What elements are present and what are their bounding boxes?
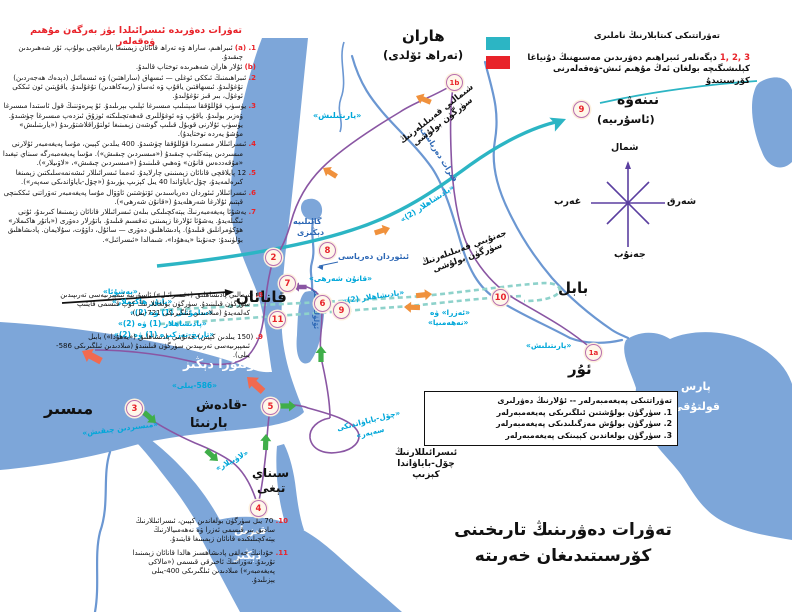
event-marker-8: 8 [319,242,336,259]
compass-south-label: جەنۇب [614,249,646,260]
event-marker-5: 5 [262,398,279,415]
compass-east-label: شەرق [667,196,696,207]
event-item: 9. (150 يىلدىن كېيىن) جەنۇبىي پادىشاھلىق… [55,333,263,361]
place-nineveh: نىنەۋە [617,92,659,108]
sea-persian-label-line2: قولتۇقى [672,400,720,413]
corner-lake-shape [752,77,792,167]
event-marker-3: 3 [126,400,143,417]
event-item: 5. 12 پايلاقچى قانائان زېمىنىنى چارلايدۇ… [2,169,256,187]
place-sinai-line2: تېغى [257,481,285,495]
legend-events-label: 1, 2, 3 دېگەنلەر ئىبراھىم دەۋرىدىن مەسىھ… [512,53,750,87]
euphrates-river [352,56,622,343]
legend-event-numbers: 1, 2, 3 [720,53,750,63]
event-item: 10. 70 يىل سۈرگۈن بولغاندىن كېيىن، ئىسرا… [128,517,288,545]
events-list-main: 1. (a) ئىبراھىم، ساراھ ۋە تەراھ قانائان … [2,44,256,246]
orange-arrow-5 [404,302,420,314]
prophets-legend: تەۋراتتىكى پەيغەمبەرلەر -- ئۇلارنىڭ دەۋر… [424,391,678,446]
prophets-legend-item: 1. سۈرگۈن بولۇشتىن ئىلگىرىكى پەيغەمبەرلە… [430,407,672,419]
compass-north-label: شمال [611,142,639,153]
legend-book-color-swatch [486,37,510,50]
event-marker-6: 6 [314,295,331,312]
event-item: (b) ئۇلار ھاران شەھىرىدە توختاپ قالىدۇ. [2,63,256,72]
route-ur-to-haran [451,84,593,350]
nile-river [95,452,110,612]
book-genesis-label-1: «يارىتىلىش» [313,111,361,120]
compass-rose [591,161,665,247]
event-item: 8. شىمالىي پادىشاھلىق («ئىسرائىل») ئاسۇر… [55,291,263,319]
place-nineveh-sub: (ئاسۇرىيە) [597,113,655,126]
jordan-pointer-line [319,262,338,266]
event-marker-1a: 1a [585,344,602,361]
book-deuteronomy-label: «قانۇن شەرھى» [309,274,372,283]
label-year-586: «586-يىلى» [172,381,217,390]
sea-persian-label-line1: پارس [681,380,711,393]
orange-arrow-1 [414,91,433,107]
event-item: 4. ئىسرائىللار مىسىردا قۇللۇققا چۈشىدۇ. … [2,140,256,168]
lake-galilee-label-line1: گالىلىيە [293,217,322,226]
note-wilderness: ئىسرائىللارنىڭ چۆل-باياۋاندا كېزىپ [390,448,462,480]
orange-arrow-4 [416,289,433,302]
event-marker-11: 11 [269,311,286,328]
compass-north-arrowhead [625,161,631,169]
event-item: 6. ئىسرائىللار ئىئوردان دەرياسىدىن ئۆتۈش… [2,189,256,207]
legend-event-color-swatch [486,56,510,69]
event-marker-4: 4 [250,500,267,517]
book-ezra-label-line1: «ئەزرا» ۋە [430,308,470,317]
prophets-legend-item: 3. سۈرگۈن بولغاندىن كېيىنكى پەيغەمبەرلەر [430,430,672,442]
place-kadesh-line1: -قادەش [196,398,247,413]
compass-west-label: غەرب [554,196,581,207]
event-marker-2: 2 [265,249,282,266]
place-haran-sub: (تەراھ ئۆلدى) [383,48,463,62]
place-kadesh-line2: بارنىئا [190,416,228,431]
river-jordan-label: ئىئوردان دەرياسى [338,252,409,261]
event-marker-10: 10 [492,289,509,306]
event-item: 11. خۇدانىڭ خەلقى پادىشاھسىز ھالدا قانائ… [128,549,288,586]
event-item: 3. يۈسۈپ قۇللۇققا سېتىلىپ مىسىرغا ئېلىپ … [2,102,256,139]
event-item: 1. (a) ئىبراھىم، ساراھ ۋە تەراھ قانائان … [2,44,256,62]
book-genesis-label-2: «يارىتىلىش» [526,341,571,350]
event-marker-7: 7 [279,275,296,292]
prophets-legend-item: 2. سۈرگۈن بولۇش مەزگىلىدىكى پەيغەمبەرلەر [430,418,672,430]
prophets-legend-title: تەۋراتتىكى پەيغەمبەرلەر -- ئۇلارنىڭ دەۋر… [430,395,672,407]
place-sinai-line1: سىناي [252,466,289,480]
events-list-bottom: 10. 70 يىل سۈرگۈن بولغاندىن كېيىن، ئىسرا… [128,517,288,587]
event-item: 2. ئىبراھىمنىڭ ئىككى ئوغلى — ئىسھاق (سار… [2,74,256,102]
place-haran: ھاران [402,27,445,45]
map-title: تەۋرات دەۋرىنىڭ تارىخىنى كۆرسىتىدىغان خە… [418,518,708,569]
green-arrow-3 [260,434,272,450]
event-marker-9-north: 9 [573,101,590,118]
event-marker-9-south: 9 [333,302,350,319]
lake-galilee-label-line2: دېڭىزى [297,228,324,237]
orange-arrow-3 [373,223,392,238]
events-list-mid: 8. شىمالىي پادىشاھلىق («ئىسرائىل») ئاسۇر… [55,291,263,361]
place-ur: ئۇر [568,360,592,378]
event-marker-1b: 1b [446,74,463,91]
legend-books-label: تەۋراتتىكى كىتابلارنىڭ ناملىرى [520,31,720,42]
book-ezra-label-line2: «نەھەمىيا» [428,318,468,327]
event-item: 7. يەشۇئا پەيغەمبەرنىڭ يېتەكچىلىكى بىلەن… [2,208,256,245]
place-babylon: بابل [558,279,588,297]
place-egypt: مىسىر [44,399,93,418]
